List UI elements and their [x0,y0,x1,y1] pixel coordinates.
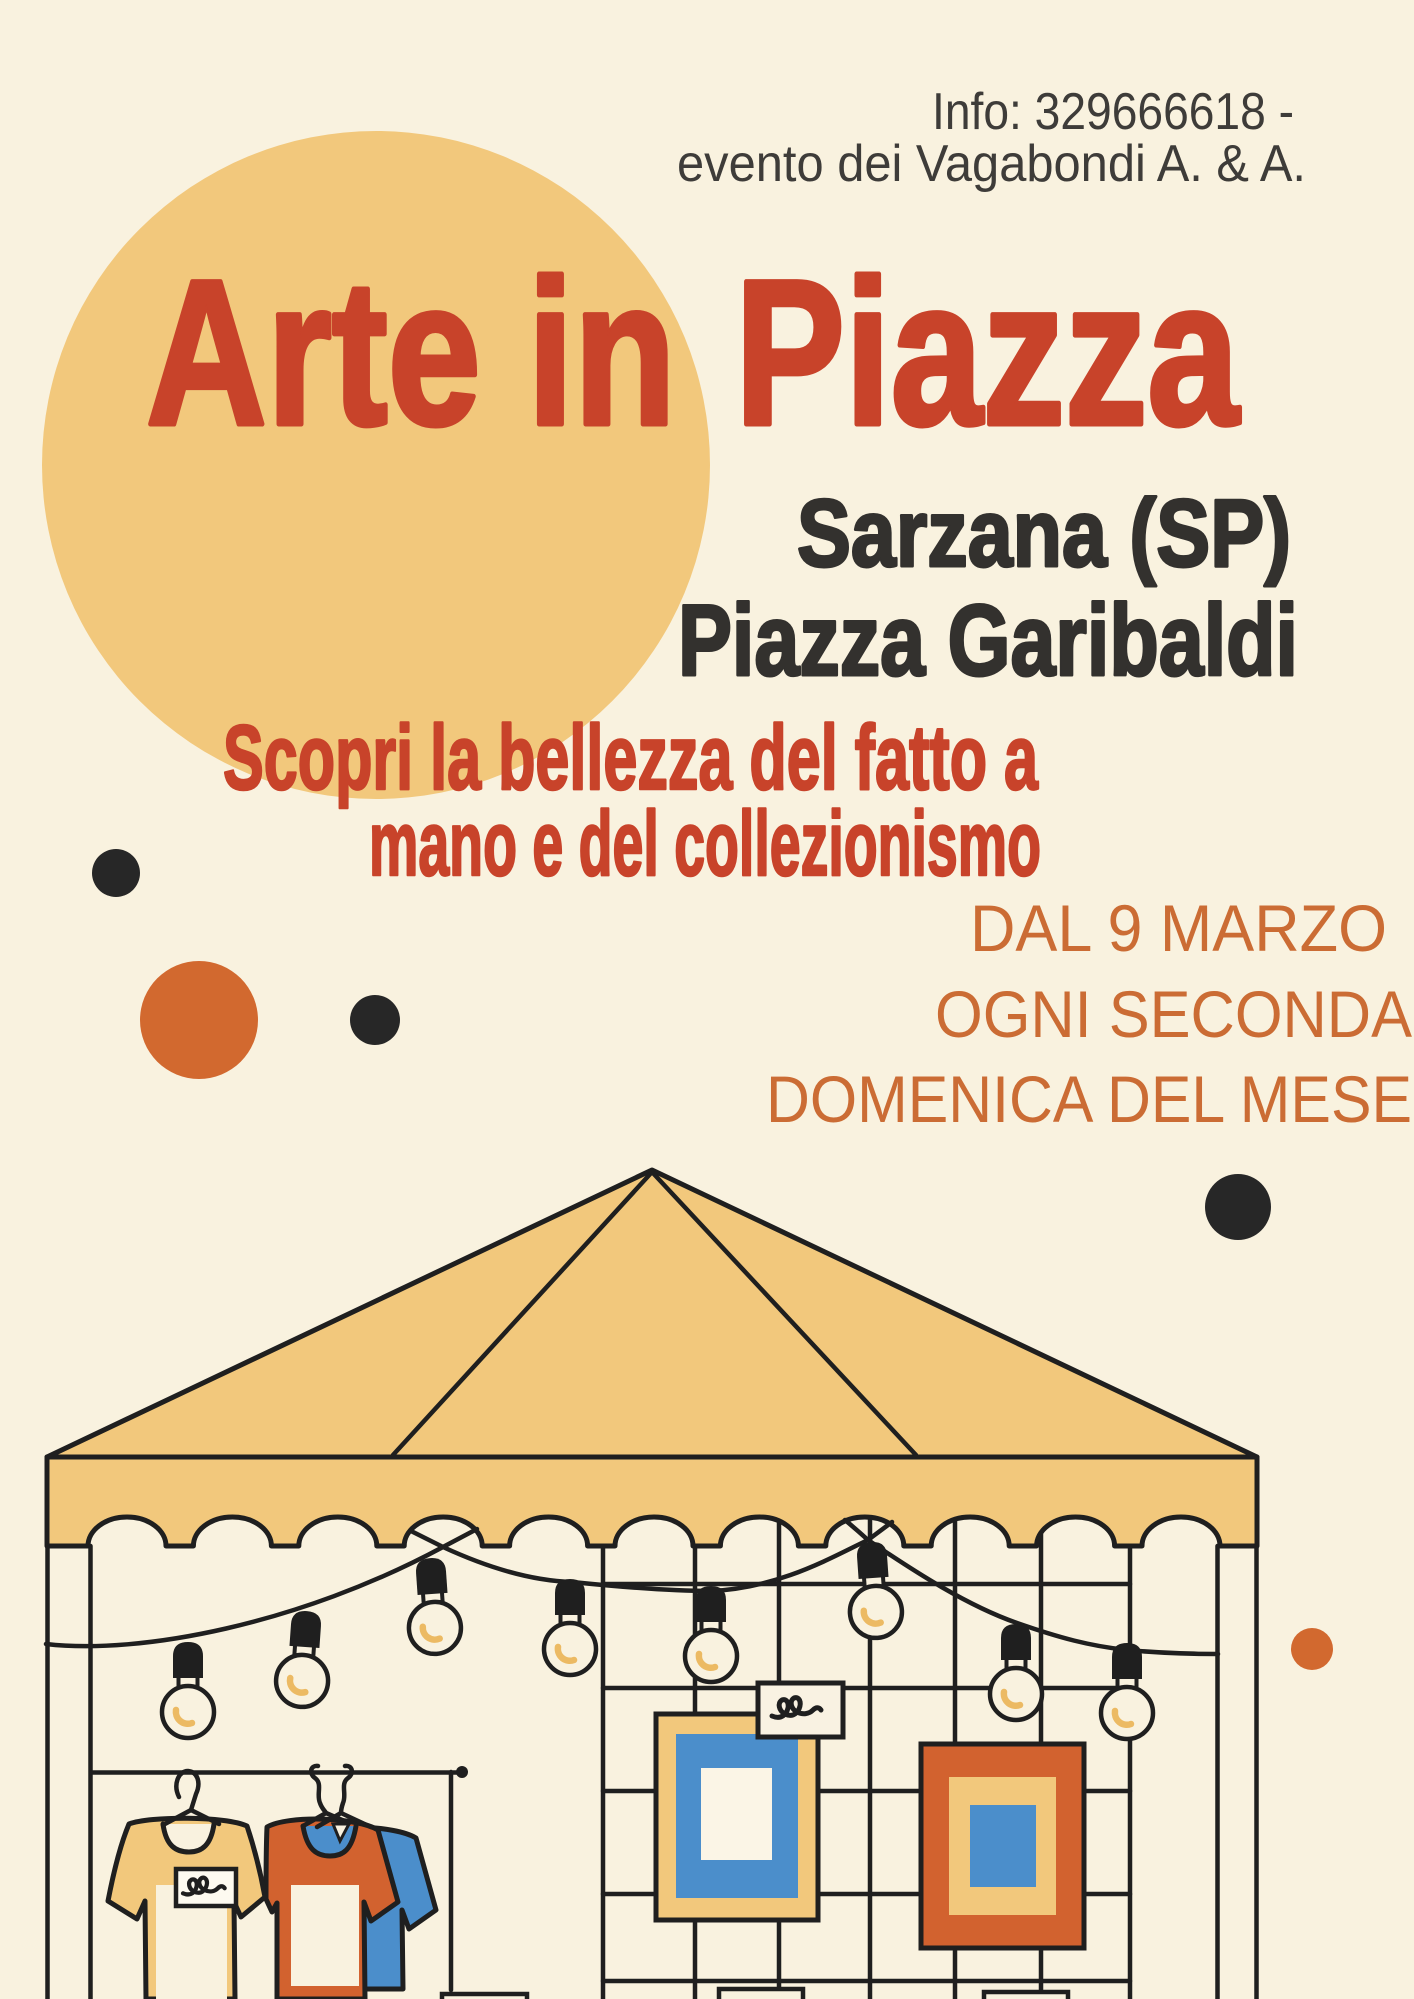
svg-text:Info: 329666618 -: Info: 329666618 - [932,83,1294,141]
svg-text:OGNI SECONDA: OGNI SECONDA [935,977,1412,1051]
svg-text:Arte in: Arte in [146,237,676,468]
svg-text:Piazza Garibaldi: Piazza Garibaldi [678,585,1298,697]
svg-text:DOMENICA DEL MESE: DOMENICA DEL MESE [766,1062,1412,1136]
svg-text:DAL 9 MARZO: DAL 9 MARZO [970,891,1387,965]
svg-text:Sarzana (SP): Sarzana (SP) [797,480,1291,587]
svg-text:evento dei Vagabondi A. & A.: evento dei Vagabondi A. & A. [677,135,1306,193]
svg-text:mano e del collezionismo: mano e del collezionismo [369,793,1041,895]
svg-text:Piazza: Piazza [735,237,1240,468]
